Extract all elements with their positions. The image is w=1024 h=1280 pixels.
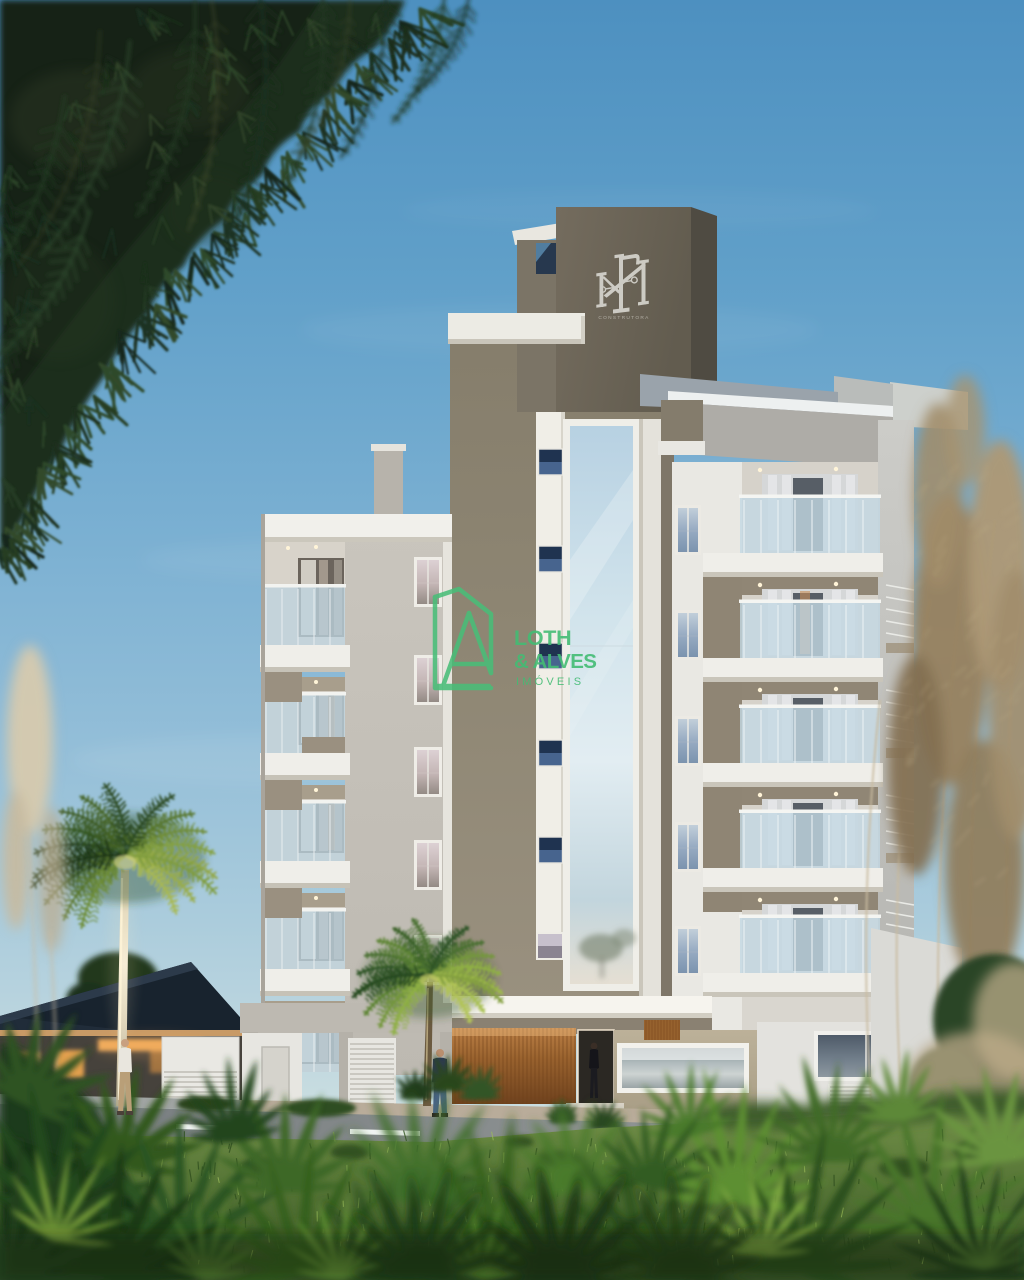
svg-text:IMÓVEIS: IMÓVEIS (516, 675, 584, 688)
svg-text:CONSTRUTORA: CONSTRUTORA (598, 315, 649, 321)
svg-text:& ALVES: & ALVES (514, 650, 596, 673)
svg-text:LOTH: LOTH (514, 626, 571, 650)
